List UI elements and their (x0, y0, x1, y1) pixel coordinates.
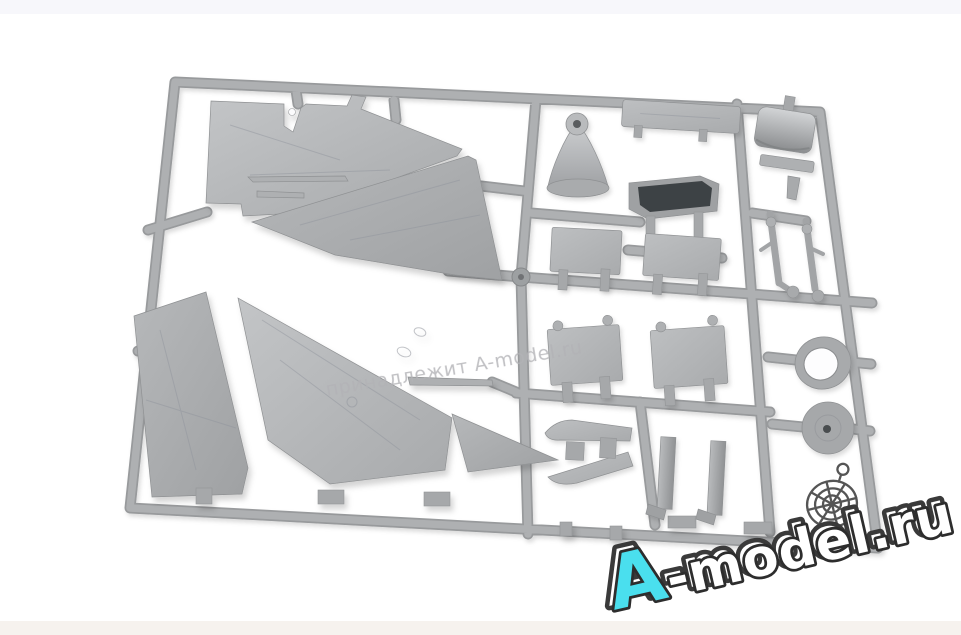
sprue-gate (318, 490, 344, 504)
sprue-gate (196, 488, 212, 504)
pitot-probe (248, 176, 348, 182)
photo-top-strip (0, 0, 961, 14)
runner-junction-hole (518, 274, 524, 280)
wing-upper-hole (289, 109, 296, 116)
sprue-gate (668, 516, 696, 528)
sprue-gate (560, 522, 572, 536)
sprue-photo-svg: принадлежит A-model.ru A-model.ru A-mode… (0, 0, 961, 635)
sprue-gate (424, 492, 450, 506)
lip-connector (599, 438, 616, 459)
photo-bottom-strip (0, 621, 961, 635)
lip-connector (566, 442, 585, 461)
sprue-product-photo: принадлежит A-model.ru A-model.ru A-mode… (0, 0, 961, 635)
wheel-disc (802, 402, 854, 454)
